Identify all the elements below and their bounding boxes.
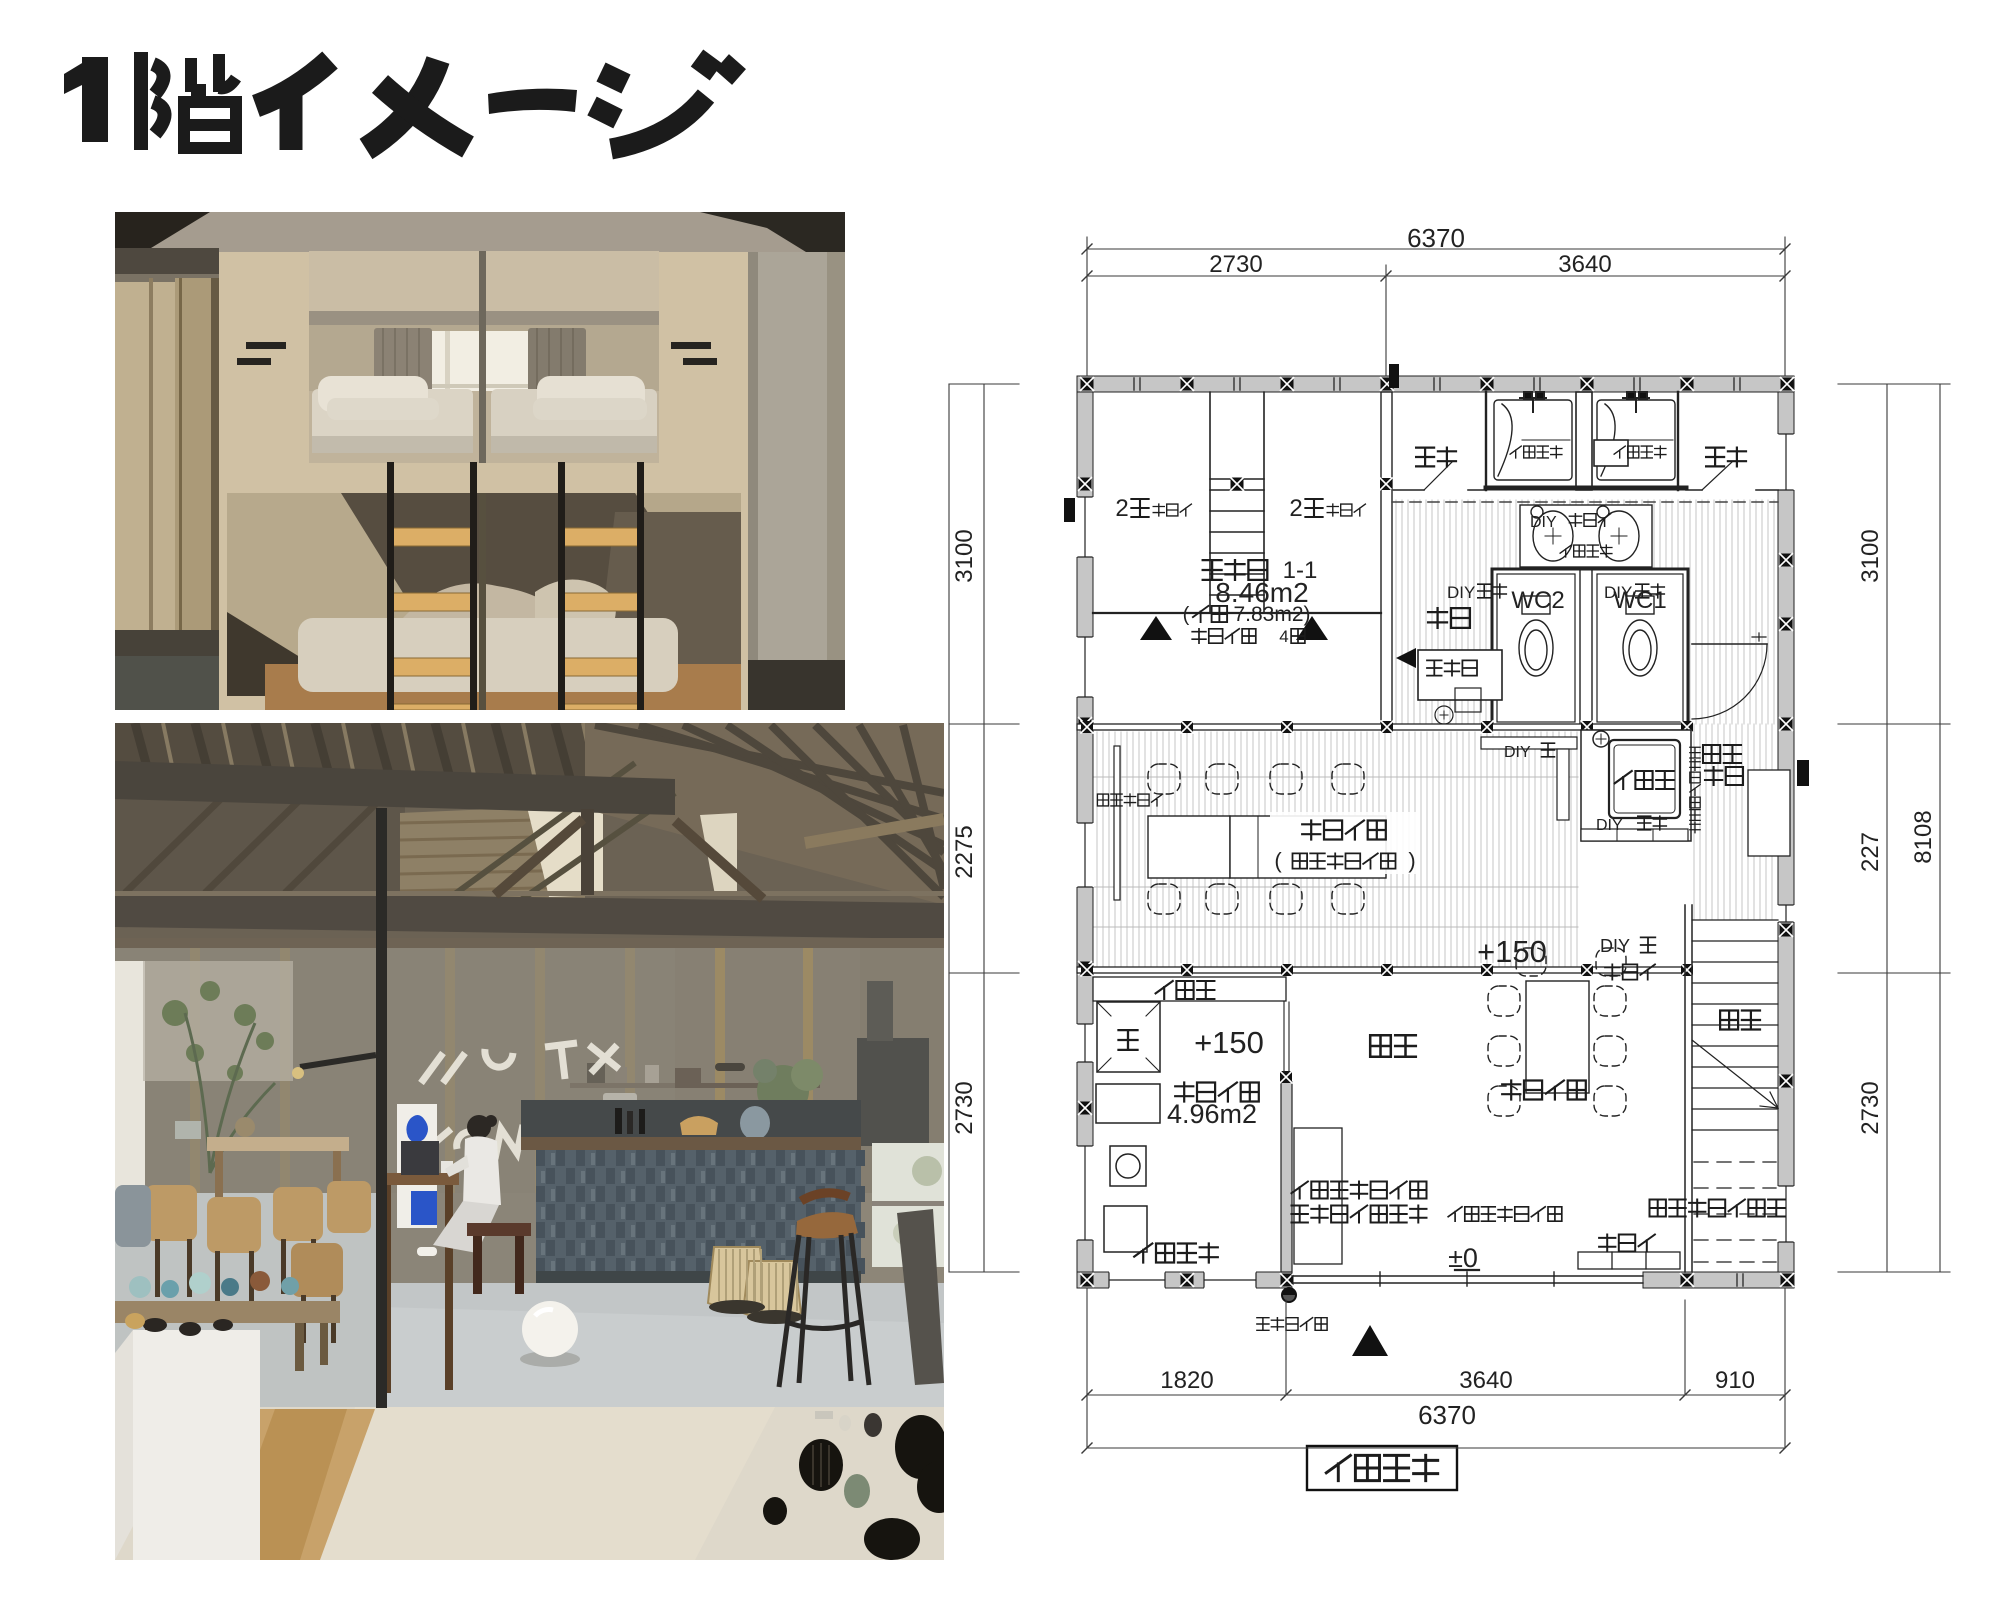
svg-text:±0: ±0 (1448, 1243, 1478, 1273)
svg-text:DIY: DIY (1530, 514, 1557, 531)
svg-text:(: ( (1274, 848, 1282, 873)
svg-text:910: 910 (1715, 1367, 1755, 1394)
svg-text:227: 227 (1857, 832, 1884, 872)
svg-text:7.83m2): 7.83m2) (1233, 603, 1310, 626)
svg-text:+150: +150 (1194, 1025, 1264, 1060)
svg-text:): ) (1408, 848, 1415, 873)
svg-text:DIY: DIY (1596, 817, 1623, 834)
svg-text:DIY: DIY (1504, 744, 1531, 761)
svg-text:DIY: DIY (1447, 583, 1475, 602)
svg-text:3640: 3640 (1459, 1367, 1512, 1394)
svg-text:6370: 6370 (1407, 223, 1465, 253)
svg-text:2730: 2730 (1209, 251, 1262, 278)
svg-text:3100: 3100 (1857, 529, 1884, 582)
svg-text:4: 4 (1279, 627, 1288, 646)
svg-text:2730: 2730 (951, 1081, 978, 1134)
svg-text:3640: 3640 (1558, 251, 1611, 278)
svg-text:3100: 3100 (951, 529, 978, 582)
svg-text:6370: 6370 (1418, 1400, 1476, 1430)
svg-text:2: 2 (1289, 495, 1302, 522)
svg-text:1820: 1820 (1160, 1367, 1213, 1394)
svg-text:WC2: WC2 (1511, 587, 1564, 614)
svg-text:8108: 8108 (1910, 810, 1937, 863)
svg-text:(: ( (1183, 604, 1190, 626)
svg-text:DIY: DIY (1600, 936, 1630, 956)
svg-text:4.96m2: 4.96m2 (1167, 1099, 1257, 1129)
svg-text:2275: 2275 (951, 825, 978, 878)
svg-text:2730: 2730 (1857, 1081, 1884, 1134)
svg-text:WC1: WC1 (1613, 587, 1666, 614)
svg-text:+150: +150 (1477, 934, 1547, 969)
svg-text:2: 2 (1115, 495, 1128, 522)
